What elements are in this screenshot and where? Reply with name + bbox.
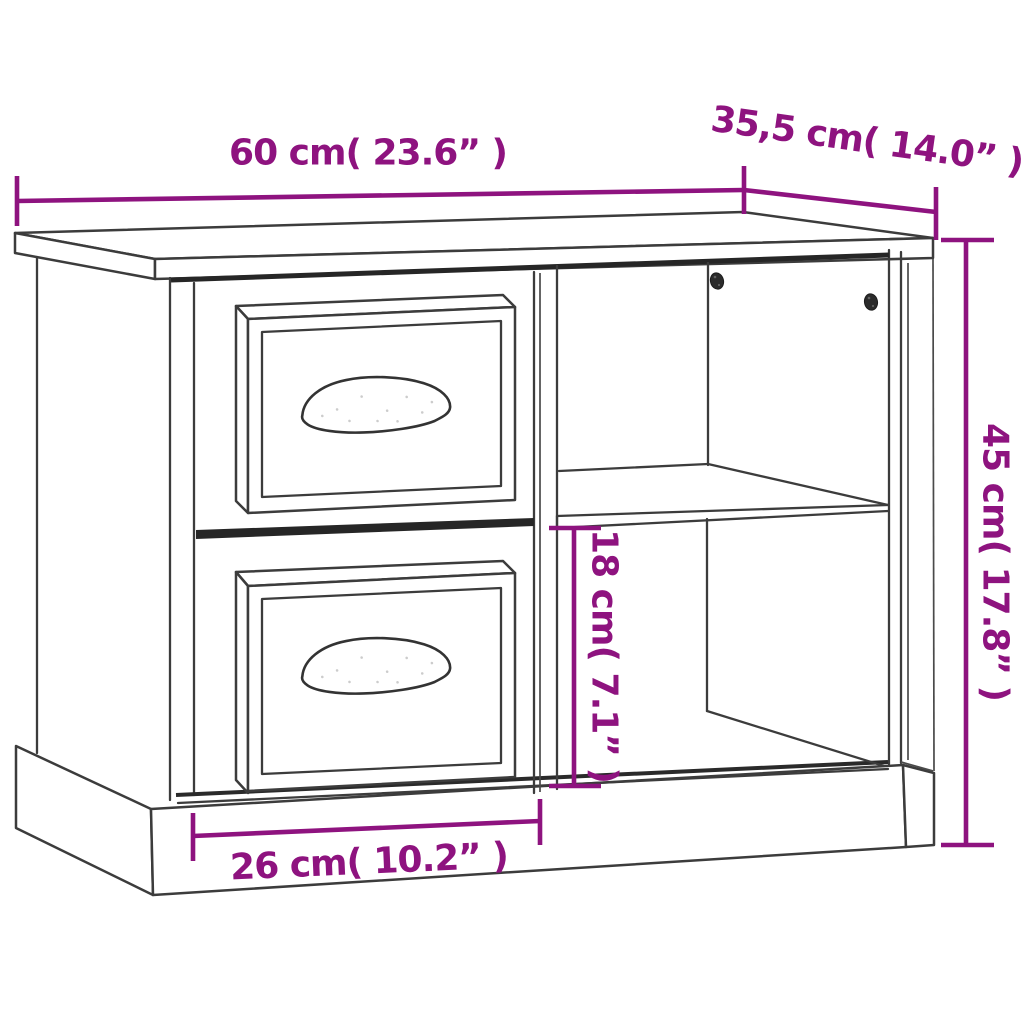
- shelf-clearance-dimension-label: 18 cm( 7.1” ): [584, 529, 625, 783]
- middle-shelf: [557, 505, 888, 528]
- depth-dimension-label: 35,5 cm( 14.0” ): [708, 99, 1024, 183]
- top-drawer: [236, 295, 515, 513]
- plinth-left-face: [16, 746, 153, 895]
- drawer-gap: [196, 518, 534, 539]
- cabinet-dimension-diagram: 60 cm( 23.6” ) 35,5 cm( 14.0” ) 45 cm( 1…: [0, 0, 1024, 1024]
- bottom-drawer: [236, 561, 515, 793]
- cabinet-line-art: [15, 212, 934, 895]
- diagram-canvas: 60 cm( 23.6” ) 35,5 cm( 14.0” ) 45 cm( 1…: [0, 0, 1024, 1024]
- height-dimension: 45 cm( 17.8” ): [941, 240, 1016, 845]
- height-dimension-label: 45 cm( 17.8” ): [975, 423, 1016, 701]
- plinth-right-face: [903, 765, 934, 847]
- width-dimension-label: 60 cm( 23.6” ): [229, 133, 507, 174]
- shelf-clearance-dimension: 18 cm( 7.1” ): [549, 528, 625, 786]
- width-dimension: 60 cm( 23.6” ): [17, 133, 744, 227]
- back-panel-screw-right: [863, 293, 879, 311]
- back-panel-screw-top: [709, 271, 726, 290]
